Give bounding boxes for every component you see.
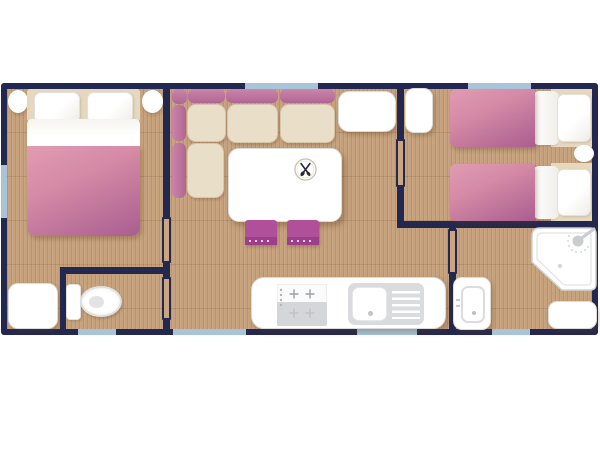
toilet-bowl <box>80 286 122 317</box>
sink-unit <box>348 283 424 325</box>
window-bottom-kitchen <box>357 329 417 335</box>
shower-drain <box>558 264 562 268</box>
sink-basin <box>352 287 387 321</box>
door-shower-room <box>448 229 457 274</box>
window-bottom-living <box>173 329 246 335</box>
double-bed-blanket <box>27 146 140 236</box>
sofa-seat-corner <box>187 104 226 142</box>
washbasin-drain <box>472 311 476 315</box>
sink-drain <box>368 311 373 316</box>
washbasin-bowl <box>461 286 485 323</box>
bedside-stool-right <box>142 90 163 113</box>
window-left-bedroom1 <box>1 165 7 218</box>
window-bottom-shower <box>492 329 530 335</box>
stool-stripe <box>287 237 319 245</box>
shower-tray <box>530 226 598 294</box>
door-bedroom1 <box>162 217 171 263</box>
washbasin-tap <box>456 299 460 301</box>
washbasin <box>453 277 491 330</box>
sofa-seat-left <box>187 143 224 198</box>
dining-stool-1 <box>245 220 277 245</box>
twin-bed2-pillow <box>557 169 591 216</box>
washbasin-tap <box>456 305 460 307</box>
door-bedroom2 <box>396 139 405 187</box>
sink-drainer-ridges <box>392 291 420 319</box>
twin-bed1-pillow <box>557 94 591 142</box>
sofa-back-corner <box>172 89 187 104</box>
wardrobe-bedroom1 <box>8 283 58 329</box>
dining-table <box>228 148 342 222</box>
bathroom-cabinet <box>548 301 597 329</box>
window-bottom-wc <box>78 329 116 335</box>
bedside-stool-left <box>8 90 28 113</box>
floor-plan-canvas <box>0 0 600 450</box>
twin-bed2-sheet <box>533 166 559 219</box>
twin-bed1-sheet <box>533 91 559 145</box>
twin-bed1-blanket <box>450 89 535 147</box>
stove <box>277 284 327 326</box>
sofa-back-left-2 <box>172 143 186 198</box>
wall-wc-top <box>60 267 170 274</box>
sideboard <box>338 91 396 132</box>
sofa-back-left-1 <box>172 105 186 141</box>
sofa-back-top-3 <box>280 89 335 103</box>
sofa-back-top-1 <box>188 89 225 103</box>
nightstand-between-beds <box>574 145 594 162</box>
sofa-back-top-2 <box>226 89 278 103</box>
cutlery-icon <box>294 158 317 181</box>
sofa-seat-top-2 <box>227 104 278 143</box>
twin-bed2-blanket <box>450 164 535 221</box>
stool-stripe <box>245 237 277 245</box>
sofa-seat-top-3 <box>280 104 335 143</box>
toilet-tank <box>66 284 81 320</box>
toilet-bowl-shade <box>89 296 104 308</box>
wardrobe-bedroom2 <box>405 88 433 133</box>
door-wc <box>162 277 171 320</box>
dining-stool-2 <box>287 220 319 245</box>
